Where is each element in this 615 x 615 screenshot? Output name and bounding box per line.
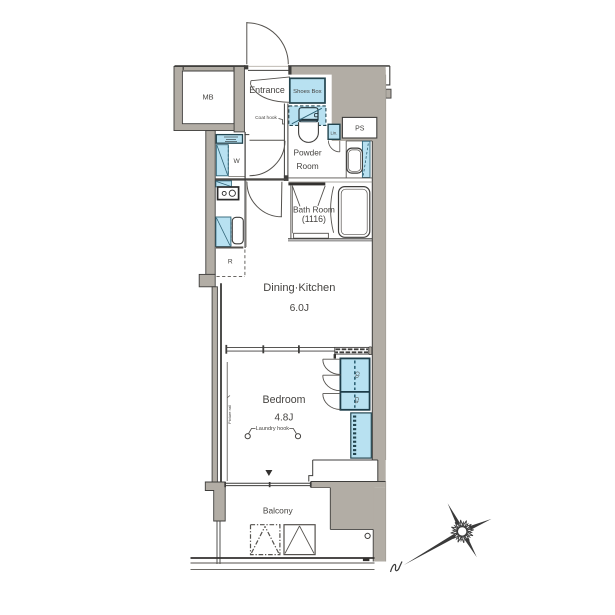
svg-text:Room: Room xyxy=(297,161,319,171)
svg-text:4.8J: 4.8J xyxy=(274,413,293,424)
svg-text:Bedroom: Bedroom xyxy=(263,394,306,406)
svg-text:6.0J: 6.0J xyxy=(290,303,309,314)
svg-text:MB: MB xyxy=(202,93,213,102)
svg-text:Lin.: Lin. xyxy=(331,131,338,136)
svg-text:Shoes Box: Shoes Box xyxy=(293,89,322,95)
svg-text:W: W xyxy=(233,158,240,165)
svg-text:Powder: Powder xyxy=(294,148,322,158)
svg-text:Cb.: Cb. xyxy=(354,371,360,379)
svg-text:PS: PS xyxy=(355,125,365,132)
svg-text:Coat hook: Coat hook xyxy=(255,115,277,121)
svg-text:Cb.: Cb. xyxy=(353,397,359,405)
svg-text:Dining·Kitchen: Dining·Kitchen xyxy=(263,282,335,294)
svg-text:R: R xyxy=(228,259,233,266)
svg-text:Laundry hook: Laundry hook xyxy=(256,426,290,432)
svg-text:Balcony: Balcony xyxy=(263,505,294,515)
svg-text:(1116): (1116) xyxy=(302,214,326,224)
svg-text:Picture rail: Picture rail xyxy=(227,405,232,424)
